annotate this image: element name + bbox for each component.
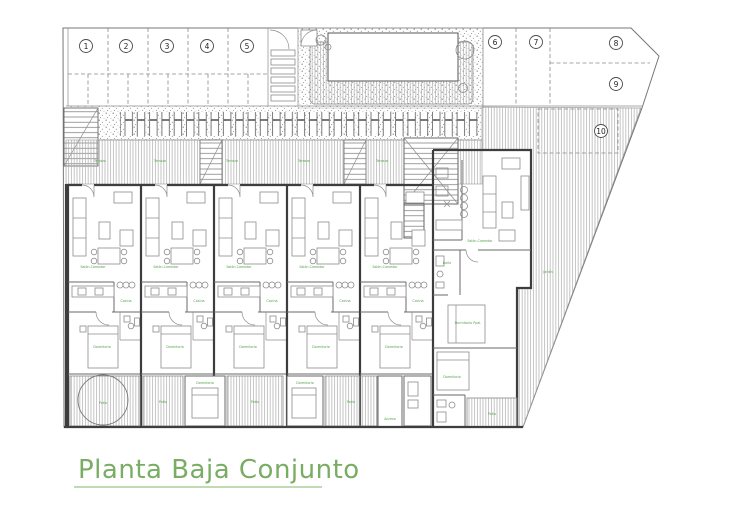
floor-plan-canvas: 1 2 3 4 5 6 7 8 9 [0, 0, 756, 528]
parking-spot-9: 9 [610, 78, 623, 91]
parking-spot-number: 9 [614, 80, 619, 89]
plan-title-block: Planta Baja Conjunto [74, 455, 360, 487]
parking-spot-number: 3 [165, 42, 170, 51]
parking-spot-6: 6 [489, 36, 502, 49]
room-label-patio: Patio [159, 400, 167, 404]
room-label-patio: Patio [99, 401, 107, 405]
room-label-terraza: Terraza [153, 159, 166, 163]
room-label-patio: Patio [347, 400, 355, 404]
room-label-terraza: Terraza [375, 159, 388, 163]
room-label-jardin: Jardín [542, 270, 552, 274]
terrace-stair [200, 140, 222, 184]
room-label-salon: Salón-Comedor [299, 265, 325, 269]
room-label-terraza: Terraza [297, 159, 310, 163]
plan-title: Planta Baja Conjunto [78, 455, 360, 485]
room-label-cocina: Cocina [266, 299, 277, 303]
room-label-terraza: Terraza [93, 159, 106, 163]
parking-spot-number: 4 [205, 42, 210, 51]
floor-plan-drawing: 1 2 3 4 5 6 7 8 9 [0, 0, 756, 528]
swimming-pool [328, 33, 458, 81]
room-label-dormitorio: Dormitorio [385, 345, 403, 349]
parking-spot-number: 10 [596, 127, 606, 136]
room-label-cocina: Cocina [339, 299, 350, 303]
parking-spot-2: 2 [120, 40, 133, 53]
room-label-salon: Salón-Comedor [153, 265, 179, 269]
parking-spot-8: 8 [610, 37, 623, 50]
room-label-dormitorio: Dormitorio [312, 345, 330, 349]
room-label-terraza: Terraza [225, 159, 238, 163]
room-label-cocina: Cocina [193, 299, 204, 303]
room-label-patio: Patio [251, 400, 259, 404]
rear-patios: Patio Patio Patio Patio Dormitorio Dormi… [70, 375, 431, 427]
room-label-dormitorio: Dormitorio [196, 381, 214, 385]
room-label-patio: Patio [488, 412, 496, 416]
terrace-stair [344, 140, 366, 184]
room-label-bano: Baño [443, 261, 451, 265]
parking-spot-1: 1 [80, 40, 93, 53]
room-label-acceso: Acceso [384, 417, 396, 421]
parking-spot-number: 7 [534, 38, 539, 47]
parking-spot-number: 6 [493, 38, 498, 47]
pool-area [298, 28, 483, 108]
pergola-slats [120, 112, 478, 136]
room-label-salon: Salón-Comedor [372, 265, 398, 269]
room-label-dormitorio: Dormitorio [239, 345, 257, 349]
parking-spot-7: 7 [530, 36, 543, 49]
room-label-salon: Salón-Comedor [226, 265, 252, 269]
room-label-dormitorio-ppal: Dormitorio Ppal. [455, 321, 482, 325]
parking-spot-10: 10 [595, 125, 608, 138]
room-label-cocina: Cocina [412, 299, 423, 303]
room-label-dormitorio: Dormitorio [93, 345, 111, 349]
parking-spot-number: 8 [614, 39, 619, 48]
parking-spot-5: 5 [241, 40, 254, 53]
room-label-dormitorio: Dormitorio [296, 381, 314, 385]
rear-bedroom [404, 376, 431, 426]
parking-spot-number: 5 [245, 42, 250, 51]
parking-spot-number: 1 [84, 42, 89, 51]
room-label-dormitorio: Dormitorio [166, 345, 184, 349]
room-label-dormitorio: Dormitorio [443, 375, 461, 379]
room-label-salon: Salón-Comedor [467, 239, 493, 243]
parking-spot-3: 3 [161, 40, 174, 53]
parking-spot-number: 2 [124, 42, 129, 51]
room-label-salon: Salón-Comedor [80, 265, 106, 269]
room-label-cocina: Cocina [120, 299, 131, 303]
parking-spot-4: 4 [201, 40, 214, 53]
